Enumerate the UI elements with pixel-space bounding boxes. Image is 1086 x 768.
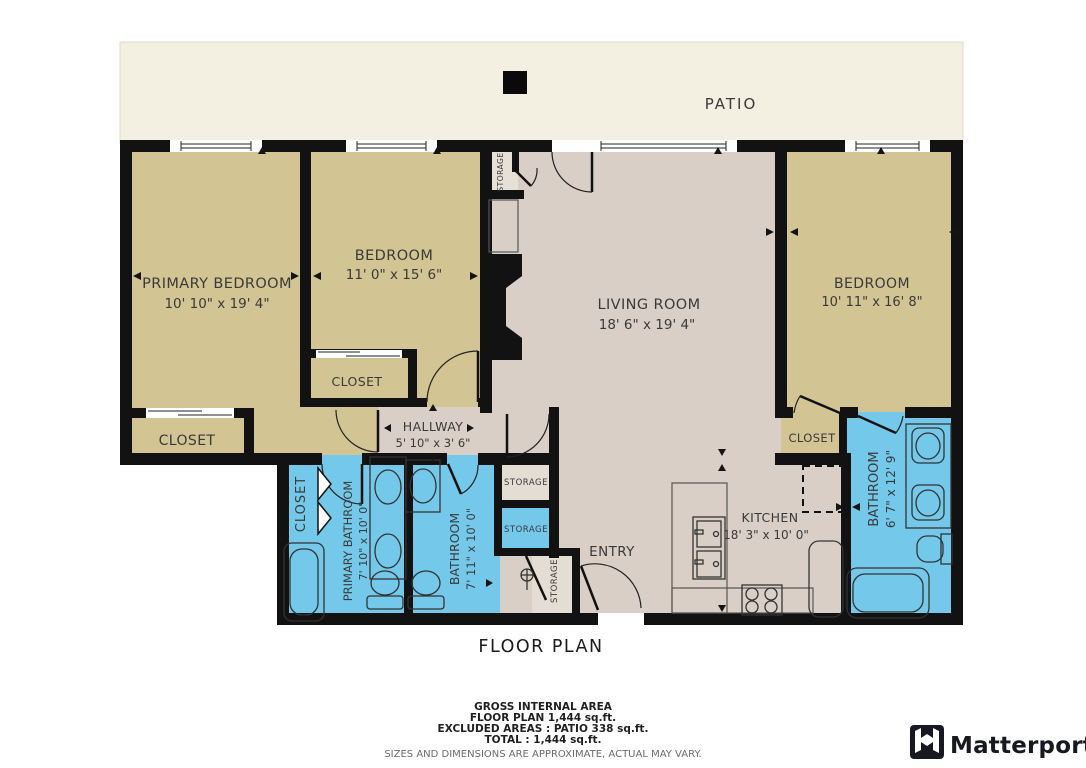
window-living-room — [590, 140, 737, 152]
matterport-wordmark: Matterport — [950, 733, 1086, 759]
hallway-dims: 5' 10" x 3' 6" — [396, 436, 471, 450]
entry-label: ENTRY — [589, 544, 635, 560]
sliding-door-primary-closet — [146, 408, 234, 418]
camera-marker — [503, 71, 527, 94]
closet-blue-label: CLOSET — [294, 476, 309, 533]
page-title: FLOOR PLAN — [478, 637, 603, 657]
bedroom-3-label: BEDROOM — [834, 276, 910, 292]
window-bedroom-2 — [346, 140, 437, 152]
patio-area: PATIO — [120, 42, 963, 143]
storage-top-label: STORAGE — [496, 152, 505, 191]
titles: FLOOR PLAN GROSS INTERNAL AREA FLOOR PLA… — [384, 637, 701, 760]
patio-label: PATIO — [705, 95, 758, 113]
primary-bathroom-dims: 7' 10" x 10' 0" — [357, 502, 370, 581]
total-area: TOTAL : 1,444 sq.ft. — [485, 734, 602, 746]
closet-3-label: CLOSET — [788, 431, 836, 445]
primary-bathroom-label: PRIMARY BATHROOM — [341, 481, 355, 602]
closet-primary-label: CLOSET — [159, 433, 216, 449]
primary-bedroom-dims: 10' 10" x 19' 4" — [164, 296, 269, 312]
floor-plan-image: PATIO — [0, 0, 1086, 768]
patio-door-opening — [552, 140, 590, 152]
sliding-door-closet-2 — [316, 350, 402, 358]
bedroom-2-label: BEDROOM — [355, 248, 434, 264]
bathroom-3-dims: 6' 7" x 12' 9" — [884, 450, 898, 528]
bathroom-3-label: BATHROOM — [867, 451, 882, 526]
storage-1-label: STORAGE — [504, 478, 548, 488]
bathroom-2-dims: 7' 11" x 10' 0" — [464, 508, 478, 590]
window-bedroom-3 — [845, 140, 930, 152]
kitchen-dims: 18' 3" x 10' 0" — [723, 528, 809, 542]
primary-bedroom-label: PRIMARY BEDROOM — [142, 276, 292, 292]
closet-2-label: CLOSET — [332, 374, 383, 389]
bathroom-3-floor — [845, 412, 953, 619]
window-primary-bedroom — [170, 140, 262, 152]
hallway-label: HALLWAY — [403, 419, 463, 434]
matterport-logo: Matterport — [910, 725, 1086, 759]
bathroom-2-label: BATHROOM — [447, 513, 462, 585]
living-room-label: LIVING ROOM — [597, 297, 700, 313]
bedroom-2-dims: 11' 0" x 15' 6" — [346, 267, 443, 283]
kitchen-label: KITCHEN — [742, 510, 799, 525]
disclaimer: SIZES AND DIMENSIONS ARE APPROXIMATE, AC… — [384, 749, 701, 760]
storage-entry-label: STORAGE — [550, 559, 560, 603]
bedroom-3-dims: 10' 11" x 16' 8" — [821, 295, 922, 310]
living-room-dims: 18' 6" x 19' 4" — [599, 317, 696, 333]
storage-2-label: STORAGE — [504, 525, 548, 535]
floor-plan-page: PATIO — [0, 0, 1086, 768]
